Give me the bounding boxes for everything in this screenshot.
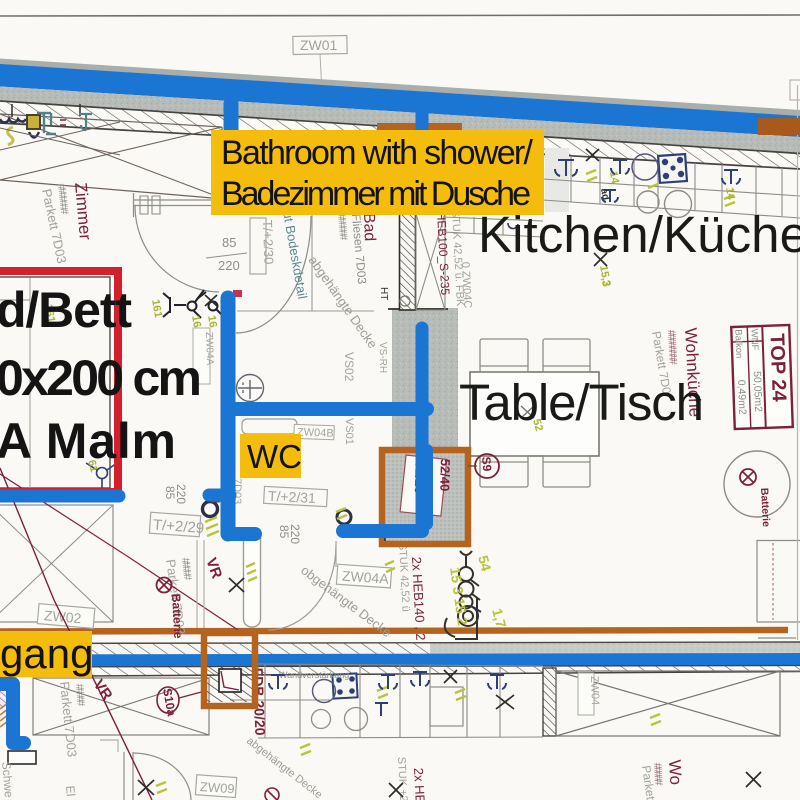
svg-text:HT: HT — [378, 287, 389, 300]
svg-text:Table/Tisch: Table/Tisch — [459, 374, 704, 431]
svg-text:ZW04B: ZW04B — [297, 426, 334, 439]
svg-text:85: 85 — [163, 486, 177, 500]
svg-text:STUK +2: STUK +2 — [395, 757, 409, 800]
svg-text:WC: WC — [247, 438, 302, 475]
svg-text:######: ###### — [335, 213, 349, 242]
svg-text:2x HE: 2x HE — [411, 767, 428, 800]
svg-text:VS-RH: VS-RH — [377, 342, 388, 373]
svg-text:ad: ad — [598, 188, 611, 201]
svg-text:TOP 24: TOP 24 — [765, 333, 789, 403]
svg-text:85: 85 — [222, 235, 236, 250]
svg-text:ZW04A: ZW04A — [203, 332, 215, 366]
svg-text:0 ZW04C: 0 ZW04C — [459, 262, 473, 309]
svg-text:Balkon: Balkon — [732, 329, 744, 358]
svg-text:0x200 cm: 0x200 cm — [0, 350, 202, 406]
svg-text:ZW01: ZW01 — [300, 37, 338, 53]
svg-text:WNF: WNF — [748, 329, 760, 351]
svg-text:Bathroom with shower/: Bathroom with shower/ — [221, 134, 534, 172]
svg-text:ZW04: ZW04 — [588, 676, 601, 706]
svg-text:0,49m2: 0,49m2 — [735, 380, 748, 416]
svg-text:Batterie: Batterie — [169, 593, 185, 639]
svg-text:Wandverstärkung: Wandverstärkung — [279, 670, 349, 680]
svg-text:50,05m2: 50,05m2 — [751, 371, 764, 412]
svg-text:#####: ##### — [73, 683, 87, 707]
svg-text:220: 220 — [218, 258, 240, 273]
svg-text:52/40: 52/40 — [437, 459, 453, 492]
svg-text:16: 16 — [205, 314, 219, 328]
svg-text:A Malm: A Malm — [0, 413, 176, 469]
svg-text:Batterie: Batterie — [758, 488, 772, 528]
svg-text:T/+2/30: T/+2/30 — [260, 220, 277, 265]
svg-text:16: 16 — [189, 314, 203, 328]
svg-text:El: El — [63, 785, 78, 797]
svg-text:T/+2/31: T/+2/31 — [268, 488, 317, 506]
svg-text:220: 220 — [288, 524, 302, 544]
svg-text:Kitchen/Küche: Kitchen/Küche — [478, 206, 800, 263]
svg-text:Schwe: Schwe — [0, 761, 16, 798]
svg-text:VS02: VS02 — [342, 352, 356, 382]
svg-text:Wo: Wo — [665, 759, 685, 785]
svg-text:T/+2/29: T/+2/29 — [152, 516, 204, 537]
svg-text:S9: S9 — [479, 456, 494, 472]
svg-text:VS01: VS01 — [343, 418, 355, 445]
svg-text:d/Bett: d/Bett — [0, 282, 132, 338]
svg-text:gang: gang — [0, 630, 93, 677]
svg-text:ZW09: ZW09 — [199, 779, 235, 796]
svg-text:ZW04A: ZW04A — [341, 568, 389, 587]
